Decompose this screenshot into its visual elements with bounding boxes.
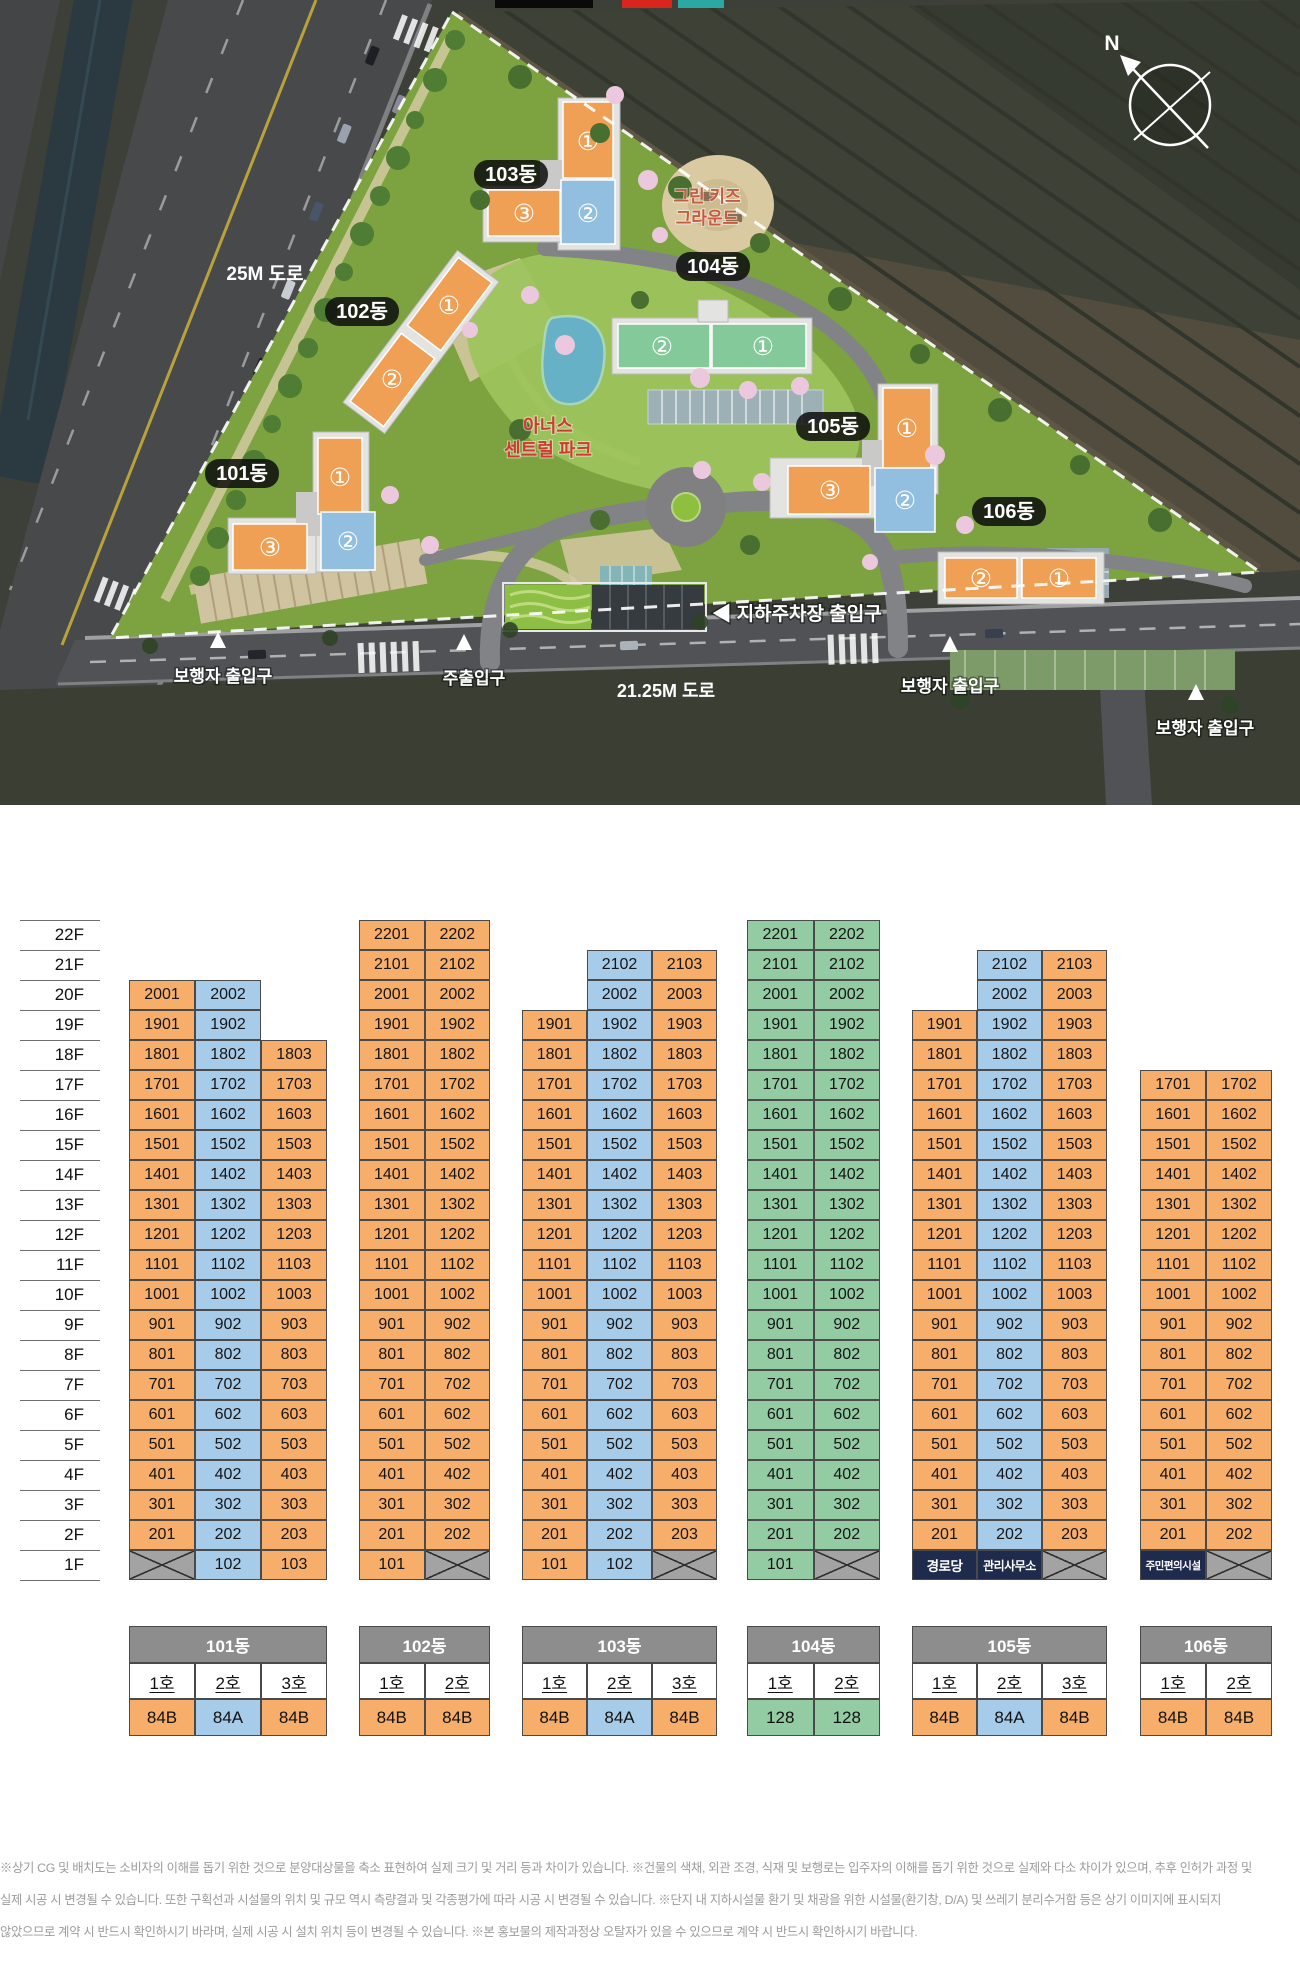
unit-cell: 501 bbox=[522, 1430, 587, 1460]
unit-cell: 1703 bbox=[261, 1070, 327, 1100]
unit-cell: 1602 bbox=[1206, 1100, 1272, 1130]
unit-cell: 702 bbox=[1206, 1370, 1272, 1400]
unit-cell: 401 bbox=[912, 1460, 977, 1490]
unit-cell: 501 bbox=[747, 1430, 814, 1460]
unit-cell: 1102 bbox=[814, 1250, 881, 1280]
unit-cell: 1501 bbox=[912, 1130, 977, 1160]
unit-cell: 301 bbox=[747, 1490, 814, 1520]
unit-cell: 903 bbox=[1042, 1310, 1107, 1340]
unit-cell: 902 bbox=[814, 1310, 881, 1340]
unit-cell: 1201 bbox=[129, 1220, 195, 1250]
empty-cell bbox=[1042, 1550, 1107, 1580]
unit-cell: 1102 bbox=[425, 1250, 491, 1280]
building-name: 104동 bbox=[747, 1626, 880, 1663]
unit-cell: 101 bbox=[359, 1550, 425, 1580]
unit-cell: 2001 bbox=[747, 980, 814, 1010]
unit-cell: 203 bbox=[261, 1520, 327, 1550]
pond bbox=[542, 316, 604, 404]
unit-cell: 602 bbox=[195, 1400, 261, 1430]
unit-column-header-text: 2호 bbox=[215, 1669, 240, 1694]
unit-cell: 2002 bbox=[425, 980, 491, 1010]
unit-cell: 302 bbox=[1206, 1490, 1272, 1520]
unit-cell: 602 bbox=[1206, 1400, 1272, 1430]
unit-cell: 1703 bbox=[652, 1070, 717, 1100]
unit-cell: 1702 bbox=[195, 1070, 261, 1100]
unit-cell: 101 bbox=[747, 1550, 814, 1580]
unit-cell: 601 bbox=[912, 1400, 977, 1430]
unit-cell: 1901 bbox=[522, 1010, 587, 1040]
unit-cell: 703 bbox=[1042, 1370, 1107, 1400]
unit-cell: 1502 bbox=[195, 1130, 261, 1160]
unit-cell: 602 bbox=[425, 1400, 491, 1430]
roundabout-green bbox=[672, 493, 700, 521]
u106-1-icon: ① bbox=[1048, 565, 1070, 593]
unit-column-header-text: 1호 bbox=[768, 1669, 793, 1694]
unit-column-header-text: 2호 bbox=[445, 1669, 470, 1694]
road-25m-label: 25M 도로 bbox=[226, 264, 303, 285]
floor-label: 4F bbox=[20, 1460, 84, 1490]
unit-cell: 1402 bbox=[195, 1160, 261, 1190]
facility-cell: 주민편의시설 bbox=[1140, 1550, 1206, 1580]
facility-cell: 경로당 bbox=[912, 1550, 977, 1580]
floor-label: 3F bbox=[20, 1490, 84, 1520]
unit-column-header: 2호 bbox=[195, 1663, 261, 1699]
unit-cell: 1302 bbox=[425, 1190, 491, 1220]
unit-cell: 802 bbox=[195, 1340, 261, 1370]
unit-cell: 2201 bbox=[747, 920, 814, 950]
pill-106: 106동 bbox=[983, 501, 1035, 523]
central-park-label-1: 아너스 bbox=[523, 416, 573, 436]
central-park-label-2: 센트럴 파크 bbox=[504, 439, 592, 460]
unit-cell: 1901 bbox=[747, 1010, 814, 1040]
unit-cell: 1402 bbox=[977, 1160, 1042, 1190]
unit-type: 84B bbox=[522, 1699, 587, 1736]
unit-cell: 301 bbox=[129, 1490, 195, 1520]
unit-cell: 1601 bbox=[912, 1100, 977, 1130]
empty-cell bbox=[1206, 1550, 1272, 1580]
unit-cell: 502 bbox=[1206, 1430, 1272, 1460]
unit-cell: 303 bbox=[1042, 1490, 1107, 1520]
unit-cell: 501 bbox=[912, 1430, 977, 1460]
unit-cell: 1203 bbox=[652, 1220, 717, 1250]
unit-type: 84B bbox=[129, 1699, 195, 1736]
unit-cell: 503 bbox=[652, 1430, 717, 1460]
unit-column-header-text: 2호 bbox=[1226, 1669, 1251, 1694]
unit-cell: 1403 bbox=[652, 1160, 717, 1190]
unit-cell: 1301 bbox=[129, 1190, 195, 1220]
unit-cell: 801 bbox=[522, 1340, 587, 1370]
unit-cell: 1103 bbox=[652, 1250, 717, 1280]
unit-column-header-text: 2호 bbox=[997, 1669, 1022, 1694]
unit-cell: 2103 bbox=[652, 950, 717, 980]
unit-cell: 1902 bbox=[977, 1010, 1042, 1040]
pill-102: 102동 bbox=[336, 301, 388, 323]
unit-cell: 1702 bbox=[977, 1070, 1042, 1100]
unit-cell: 1102 bbox=[1206, 1250, 1272, 1280]
unit-cell: 703 bbox=[261, 1370, 327, 1400]
unit-cell: 1401 bbox=[1140, 1160, 1206, 1190]
unit-cell: 1302 bbox=[814, 1190, 881, 1220]
unit-cell: 902 bbox=[1206, 1310, 1272, 1340]
unit-cell: 803 bbox=[1042, 1340, 1107, 1370]
floor-label: 19F bbox=[20, 1010, 84, 1040]
unit-cell: 2102 bbox=[587, 950, 652, 980]
floor-label: 17F bbox=[20, 1070, 84, 1100]
unit-type: 84B bbox=[1206, 1699, 1272, 1736]
unit-column-header: 2호 bbox=[587, 1663, 652, 1699]
main-entrance-label: 주출입구 bbox=[443, 669, 506, 688]
unit-cell: 901 bbox=[1140, 1310, 1206, 1340]
disclaimer-line-2: 실제 시공 시 변경될 수 있습니다. 또한 구획선과 시설물의 위치 및 규모… bbox=[0, 1884, 1298, 1916]
pill-105: 105동 bbox=[807, 416, 859, 438]
unit-column-header: 3호 bbox=[261, 1663, 327, 1699]
unit-cell: 1901 bbox=[129, 1010, 195, 1040]
unit-cell: 2001 bbox=[129, 980, 195, 1010]
unit-type: 84B bbox=[652, 1699, 717, 1736]
pedestrian-entrance-label-2: 보행자 출입구 bbox=[901, 677, 1000, 696]
unit-cell: 401 bbox=[747, 1460, 814, 1490]
unit-cell: 2202 bbox=[425, 920, 491, 950]
unit-column-header-text: 1호 bbox=[932, 1669, 957, 1694]
unit-cell: 1702 bbox=[425, 1070, 491, 1100]
building-name: 102동 bbox=[359, 1626, 490, 1663]
empty-cell bbox=[814, 1550, 881, 1580]
floor-label: 14F bbox=[20, 1160, 84, 1190]
unit-cell: 201 bbox=[359, 1520, 425, 1550]
unit-cell: 501 bbox=[1140, 1430, 1206, 1460]
unit-cell: 803 bbox=[652, 1340, 717, 1370]
empty-cell bbox=[425, 1550, 491, 1580]
unit-cell: 1701 bbox=[912, 1070, 977, 1100]
unit-cell: 2102 bbox=[814, 950, 881, 980]
unit-cell: 301 bbox=[912, 1490, 977, 1520]
compass-n-label: N bbox=[1104, 32, 1119, 55]
unit-cell: 802 bbox=[425, 1340, 491, 1370]
unit-cell: 1202 bbox=[1206, 1220, 1272, 1250]
floor-label: 13F bbox=[20, 1190, 84, 1220]
unit-cell: 1802 bbox=[977, 1040, 1042, 1070]
unit-column-header: 1호 bbox=[129, 1663, 195, 1699]
pedestrian-entrance-label-3: 보행자 출입구 bbox=[1156, 719, 1255, 738]
unit-cell: 1101 bbox=[1140, 1250, 1206, 1280]
unit-cell: 1101 bbox=[359, 1250, 425, 1280]
unit-cell: 2002 bbox=[814, 980, 881, 1010]
unit-cell: 202 bbox=[977, 1520, 1042, 1550]
unit-cell: 1803 bbox=[261, 1040, 327, 1070]
unit-column-header-text: 1호 bbox=[542, 1669, 567, 1694]
unit-cell: 702 bbox=[814, 1370, 881, 1400]
building-106 bbox=[938, 552, 1104, 604]
unit-cell: 301 bbox=[522, 1490, 587, 1520]
unit-cell: 1101 bbox=[129, 1250, 195, 1280]
unit-cell: 402 bbox=[587, 1460, 652, 1490]
unit-type: 84A bbox=[977, 1699, 1042, 1736]
unit-cell: 701 bbox=[129, 1370, 195, 1400]
unit-column-header-text: 2호 bbox=[834, 1669, 859, 1694]
unit-cell: 802 bbox=[977, 1340, 1042, 1370]
unit-cell: 1602 bbox=[587, 1100, 652, 1130]
unit-cell: 603 bbox=[652, 1400, 717, 1430]
u104-1-icon: ① bbox=[752, 333, 774, 361]
unit-cell: 1401 bbox=[522, 1160, 587, 1190]
unit-cell: 403 bbox=[1042, 1460, 1107, 1490]
floor-label: 2F bbox=[20, 1520, 84, 1550]
u103-2-icon: ② bbox=[577, 200, 599, 228]
unit-type: 84B bbox=[359, 1699, 425, 1736]
unit-cell: 201 bbox=[747, 1520, 814, 1550]
unit-cell: 902 bbox=[587, 1310, 652, 1340]
unit-column-header: 2호 bbox=[1206, 1663, 1272, 1699]
unit-cell: 302 bbox=[195, 1490, 261, 1520]
unit-cell: 2102 bbox=[425, 950, 491, 980]
unit-cell: 803 bbox=[261, 1340, 327, 1370]
unit-cell: 1603 bbox=[652, 1100, 717, 1130]
unit-cell: 1201 bbox=[912, 1220, 977, 1250]
unit-cell: 402 bbox=[195, 1460, 261, 1490]
unit-cell: 1301 bbox=[1140, 1190, 1206, 1220]
unit-cell: 903 bbox=[652, 1310, 717, 1340]
unit-cell: 2001 bbox=[359, 980, 425, 1010]
unit-cell: 801 bbox=[129, 1340, 195, 1370]
unit-cell: 2002 bbox=[977, 980, 1042, 1010]
unit-cell: 601 bbox=[359, 1400, 425, 1430]
unit-cell: 1002 bbox=[587, 1280, 652, 1310]
unit-cell: 1002 bbox=[1206, 1280, 1272, 1310]
unit-cell: 1401 bbox=[747, 1160, 814, 1190]
u105-3-icon: ③ bbox=[819, 477, 841, 505]
floor-label: 20F bbox=[20, 980, 84, 1010]
unit-cell: 902 bbox=[425, 1310, 491, 1340]
unit-cell: 1001 bbox=[522, 1280, 587, 1310]
unit-cell: 602 bbox=[814, 1400, 881, 1430]
unit-cell: 1402 bbox=[587, 1160, 652, 1190]
unit-column-header-text: 2호 bbox=[607, 1669, 632, 1694]
unit-cell: 1401 bbox=[129, 1160, 195, 1190]
unit-cell: 903 bbox=[261, 1310, 327, 1340]
unit-cell: 602 bbox=[977, 1400, 1042, 1430]
unit-cell: 1003 bbox=[1042, 1280, 1107, 1310]
unit-cell: 1503 bbox=[261, 1130, 327, 1160]
floor-label: 21F bbox=[20, 950, 84, 980]
unit-column-header: 3호 bbox=[1042, 1663, 1107, 1699]
unit-cell: 2102 bbox=[977, 950, 1042, 980]
unit-cell: 1101 bbox=[912, 1250, 977, 1280]
unit-cell: 1301 bbox=[522, 1190, 587, 1220]
building-name: 103동 bbox=[522, 1626, 717, 1663]
unit-cell: 1303 bbox=[261, 1190, 327, 1220]
unit-cell: 802 bbox=[814, 1340, 881, 1370]
unit-cell: 1103 bbox=[261, 1250, 327, 1280]
unit-cell: 603 bbox=[1042, 1400, 1107, 1430]
unit-cell: 2101 bbox=[359, 950, 425, 980]
empty-cell bbox=[129, 1550, 195, 1580]
unit-cell: 1702 bbox=[814, 1070, 881, 1100]
unit-cell: 303 bbox=[652, 1490, 717, 1520]
unit-cell: 1802 bbox=[587, 1040, 652, 1070]
unit-cell: 201 bbox=[522, 1520, 587, 1550]
unit-cell: 1202 bbox=[587, 1220, 652, 1250]
unit-cell: 1901 bbox=[359, 1010, 425, 1040]
unit-cell: 1601 bbox=[747, 1100, 814, 1130]
unit-cell: 1301 bbox=[912, 1190, 977, 1220]
u103-3-icon: ③ bbox=[513, 200, 535, 228]
u102-2-icon: ② bbox=[381, 366, 403, 394]
unit-cell: 1203 bbox=[261, 1220, 327, 1250]
unit-cell: 601 bbox=[129, 1400, 195, 1430]
unit-cell: 503 bbox=[1042, 1430, 1107, 1460]
unit-column-header: 1호 bbox=[522, 1663, 587, 1699]
unit-type: 84B bbox=[912, 1699, 977, 1736]
unit-cell: 502 bbox=[814, 1430, 881, 1460]
unit-cell: 1502 bbox=[1206, 1130, 1272, 1160]
unit-cell: 901 bbox=[912, 1310, 977, 1340]
unit-cell: 1802 bbox=[425, 1040, 491, 1070]
unit-cell: 601 bbox=[522, 1400, 587, 1430]
floor-label: 6F bbox=[20, 1400, 84, 1430]
unit-cell: 702 bbox=[425, 1370, 491, 1400]
unit-column-header: 1호 bbox=[359, 1663, 425, 1699]
unit-cell: 202 bbox=[195, 1520, 261, 1550]
unit-cell: 1503 bbox=[652, 1130, 717, 1160]
u105-1-icon: ① bbox=[896, 415, 918, 443]
unit-cell: 702 bbox=[195, 1370, 261, 1400]
unit-cell: 1202 bbox=[195, 1220, 261, 1250]
unit-cell: 302 bbox=[587, 1490, 652, 1520]
unit-type: 84A bbox=[587, 1699, 652, 1736]
unit-column-header: 1호 bbox=[912, 1663, 977, 1699]
kids-ground-label-2: 그라운드 bbox=[676, 209, 739, 228]
unit-cell: 1401 bbox=[912, 1160, 977, 1190]
unit-cell: 701 bbox=[359, 1370, 425, 1400]
unit-cell: 203 bbox=[652, 1520, 717, 1550]
unit-cell: 202 bbox=[587, 1520, 652, 1550]
site-plan-svg: ① ② ③ ① ② ① ② ③ ② ① ① ② ③ ② ① bbox=[0, 0, 1300, 805]
unit-column-header: 2호 bbox=[425, 1663, 491, 1699]
unit-cell: 802 bbox=[1206, 1340, 1272, 1370]
unit-cell: 401 bbox=[522, 1460, 587, 1490]
unit-column-header: 2호 bbox=[814, 1663, 881, 1699]
unit-cell: 502 bbox=[977, 1430, 1042, 1460]
unit-cell: 701 bbox=[1140, 1370, 1206, 1400]
unit-cell: 1901 bbox=[912, 1010, 977, 1040]
unit-cell: 1802 bbox=[814, 1040, 881, 1070]
unit-cell: 1801 bbox=[912, 1040, 977, 1070]
unit-cell: 402 bbox=[425, 1460, 491, 1490]
unit-cell: 701 bbox=[912, 1370, 977, 1400]
unit-type: 128 bbox=[747, 1699, 814, 1736]
unit-cell: 401 bbox=[129, 1460, 195, 1490]
unit-cell: 302 bbox=[425, 1490, 491, 1520]
unit-cell: 603 bbox=[261, 1400, 327, 1430]
unit-cell: 1501 bbox=[1140, 1130, 1206, 1160]
unit-cell: 1302 bbox=[195, 1190, 261, 1220]
disclaimer: ※상기 CG 및 배치도는 소비자의 이해를 돕기 위한 것으로 분양대상물을 … bbox=[0, 1852, 1298, 1948]
pill-104: 104동 bbox=[687, 256, 739, 278]
building-name: 105동 bbox=[912, 1626, 1107, 1663]
unit-cell: 1702 bbox=[587, 1070, 652, 1100]
unit-column-header-text: 3호 bbox=[672, 1669, 697, 1694]
unit-cell: 1302 bbox=[1206, 1190, 1272, 1220]
unit-cell: 201 bbox=[129, 1520, 195, 1550]
unit-cell: 1801 bbox=[129, 1040, 195, 1070]
unit-column-header-text: 1호 bbox=[379, 1669, 404, 1694]
unit-cell: 403 bbox=[261, 1460, 327, 1490]
unit-cell: 202 bbox=[814, 1520, 881, 1550]
unit-cell: 1601 bbox=[129, 1100, 195, 1130]
unit-cell: 501 bbox=[359, 1430, 425, 1460]
unit-cell: 303 bbox=[261, 1490, 327, 1520]
unit-column-header-text: 1호 bbox=[1160, 1669, 1185, 1694]
unit-column-header: 3호 bbox=[652, 1663, 717, 1699]
unit-cell: 1102 bbox=[195, 1250, 261, 1280]
unit-cell: 102 bbox=[587, 1550, 652, 1580]
unit-cell: 1501 bbox=[359, 1130, 425, 1160]
unit-cell: 103 bbox=[261, 1550, 327, 1580]
unit-type: 84B bbox=[425, 1699, 491, 1736]
unit-cell: 1003 bbox=[652, 1280, 717, 1310]
unit-cell: 1802 bbox=[195, 1040, 261, 1070]
unit-cell: 2003 bbox=[652, 980, 717, 1010]
unit-cell: 1601 bbox=[1140, 1100, 1206, 1130]
unit-cell: 801 bbox=[1140, 1340, 1206, 1370]
unit-cell: 203 bbox=[1042, 1520, 1107, 1550]
disclaimer-line-1: ※상기 CG 및 배치도는 소비자의 이해를 돕기 위한 것으로 분양대상물을 … bbox=[0, 1852, 1298, 1884]
unit-cell: 801 bbox=[747, 1340, 814, 1370]
unit-cell: 1002 bbox=[425, 1280, 491, 1310]
unit-cell: 1501 bbox=[522, 1130, 587, 1160]
unit-cell: 901 bbox=[747, 1310, 814, 1340]
unit-cell: 1002 bbox=[814, 1280, 881, 1310]
unit-cell: 2003 bbox=[1042, 980, 1107, 1010]
unit-cell: 1303 bbox=[652, 1190, 717, 1220]
unit-cell: 1602 bbox=[977, 1100, 1042, 1130]
u101-2-icon: ② bbox=[337, 528, 359, 556]
unit-cell: 1001 bbox=[912, 1280, 977, 1310]
unit-cell: 1101 bbox=[747, 1250, 814, 1280]
unit-cell: 802 bbox=[587, 1340, 652, 1370]
unit-type: 84B bbox=[1042, 1699, 1107, 1736]
unit-cell: 1903 bbox=[1042, 1010, 1107, 1040]
unit-cell: 1801 bbox=[359, 1040, 425, 1070]
u105-2-icon: ② bbox=[894, 487, 916, 515]
unit-cell: 1701 bbox=[359, 1070, 425, 1100]
unit-cell: 401 bbox=[359, 1460, 425, 1490]
unit-cell: 1902 bbox=[195, 1010, 261, 1040]
unit-cell: 1202 bbox=[814, 1220, 881, 1250]
road-2125m-label: 21.25M 도로 bbox=[617, 681, 715, 701]
pill-101: 101동 bbox=[216, 463, 268, 485]
unit-cell: 601 bbox=[747, 1400, 814, 1430]
unit-cell: 1101 bbox=[522, 1250, 587, 1280]
unit-cell: 1502 bbox=[977, 1130, 1042, 1160]
floor-label: 10F bbox=[20, 1280, 84, 1310]
u102-1-icon: ① bbox=[438, 292, 460, 320]
unit-column-header: 1호 bbox=[1140, 1663, 1206, 1699]
facility-cell: 관리사무소 bbox=[977, 1550, 1042, 1580]
unit-cell: 302 bbox=[977, 1490, 1042, 1520]
unit-cell: 2002 bbox=[587, 980, 652, 1010]
unit-cell: 1603 bbox=[261, 1100, 327, 1130]
unit-cell: 1002 bbox=[195, 1280, 261, 1310]
unit-cell: 301 bbox=[1140, 1490, 1206, 1520]
unit-cell: 2201 bbox=[359, 920, 425, 950]
unit-cell: 1201 bbox=[522, 1220, 587, 1250]
unit-cell: 101 bbox=[522, 1550, 587, 1580]
unit-cell: 1403 bbox=[1042, 1160, 1107, 1190]
unit-cell: 401 bbox=[1140, 1460, 1206, 1490]
unit-column-header: 2호 bbox=[977, 1663, 1042, 1699]
kids-ground-label-1: 그린 키즈 bbox=[673, 187, 741, 206]
